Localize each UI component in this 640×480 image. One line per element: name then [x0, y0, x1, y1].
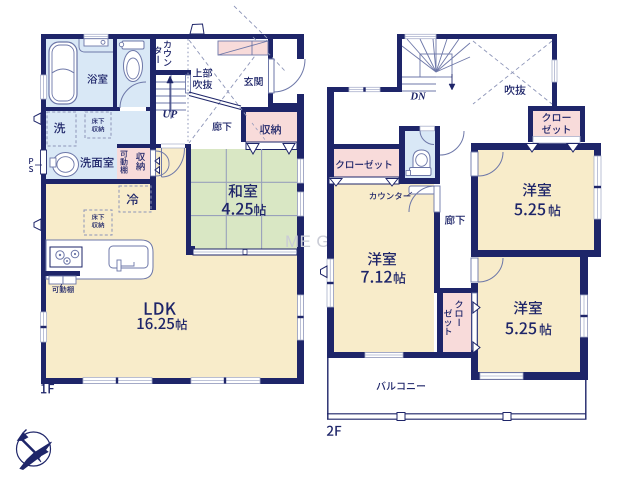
svg-text:UP: UP: [163, 109, 178, 121]
svg-text:DN: DN: [410, 92, 427, 103]
